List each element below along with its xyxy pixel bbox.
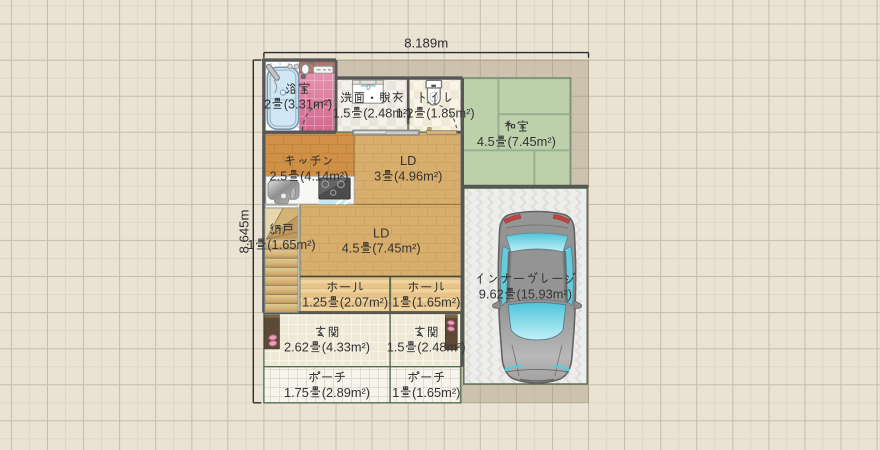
svg-text:(15.93m²): (15.93m²) (517, 286, 572, 301)
svg-text:1.25: 1.25 (302, 295, 327, 310)
svg-text:1: 1 (392, 295, 399, 310)
svg-text:(4.33m²): (4.33m²) (322, 340, 370, 355)
svg-text:(2.89m²): (2.89m²) (322, 385, 370, 400)
svg-text:(1.85m²): (1.85m²) (426, 105, 474, 120)
svg-text:1.75: 1.75 (284, 385, 309, 400)
svg-text:(2.48m²): (2.48m²) (417, 340, 465, 355)
svg-text:4.5: 4.5 (342, 241, 360, 256)
svg-text:1.2: 1.2 (396, 105, 414, 120)
svg-text:3: 3 (374, 168, 381, 183)
svg-text:8.189m: 8.189m (404, 36, 448, 51)
svg-text:(2.07m²): (2.07m²) (340, 295, 388, 310)
svg-text:LD: LD (400, 153, 416, 168)
svg-text:(3.31m²): (3.31m²) (284, 96, 332, 111)
svg-text:2.5: 2.5 (270, 168, 288, 183)
svg-text:(7.45m²): (7.45m²) (508, 134, 556, 149)
svg-text:4.5: 4.5 (477, 134, 495, 149)
svg-text:8.645m: 8.645m (237, 209, 252, 253)
svg-text:1: 1 (392, 385, 399, 400)
svg-text:(1.65m²): (1.65m²) (412, 385, 460, 400)
svg-text:2: 2 (264, 96, 271, 111)
svg-text:9.62: 9.62 (479, 286, 504, 301)
svg-text:LD: LD (373, 225, 389, 240)
svg-text:2.62: 2.62 (284, 340, 309, 355)
svg-text:(1.65m²): (1.65m²) (267, 237, 315, 252)
svg-text:(7.45m²): (7.45m²) (372, 241, 420, 256)
svg-text:(4.14m²): (4.14m²) (300, 168, 348, 183)
svg-text:1.5: 1.5 (333, 105, 351, 120)
svg-text:1.5: 1.5 (387, 340, 405, 355)
svg-text:(4.96m²): (4.96m²) (394, 168, 442, 183)
svg-text:(1.65m²): (1.65m²) (412, 295, 460, 310)
